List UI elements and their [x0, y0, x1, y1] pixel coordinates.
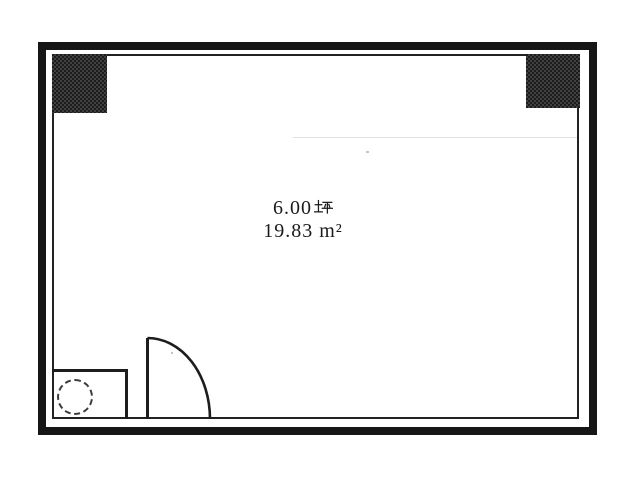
- column-top-right: [526, 54, 580, 108]
- floor-plan: 6.00 19.83 m²: [0, 0, 640, 480]
- scan-noise-speck: [171, 352, 173, 354]
- area-tsubo-value: 6.00: [273, 197, 312, 219]
- area-sqm-value: 19.83 m²: [263, 220, 343, 242]
- tsubo-unit-kanji-icon: [314, 197, 333, 216]
- area-label: 6.00 19.83 m²: [203, 197, 403, 243]
- fixture-circle: [57, 379, 93, 415]
- faint-scan-line: [293, 137, 577, 138]
- area-tsubo-line: 6.00: [203, 197, 403, 220]
- area-sqm-line: 19.83 m²: [203, 220, 403, 243]
- scan-noise-speck: [366, 151, 369, 153]
- column-top-left: [52, 54, 107, 113]
